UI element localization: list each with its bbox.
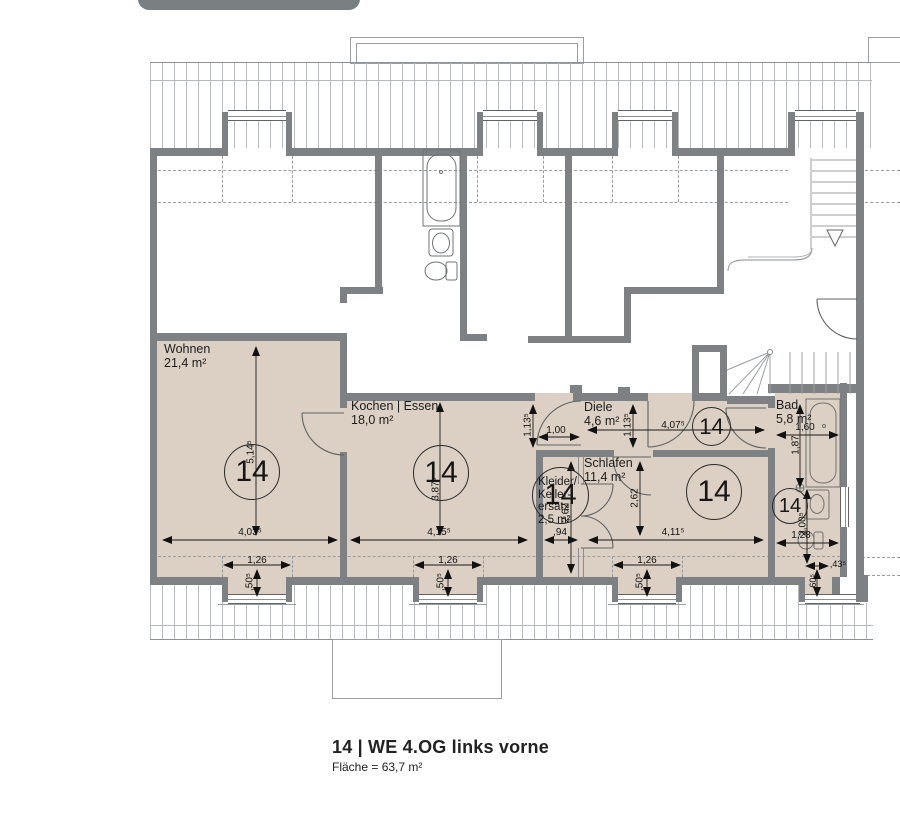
- dormer-wall: [676, 577, 682, 602]
- wall: [340, 287, 347, 303]
- wall: [653, 450, 775, 457]
- window-sill: [218, 604, 296, 605]
- wall: [840, 527, 847, 577]
- dim-label: 4,03⁵: [238, 527, 262, 538]
- dormer-wall: [788, 112, 795, 156]
- roof-height-dashed-line: [865, 170, 900, 171]
- wall: [768, 384, 863, 393]
- dim-label: 1,13⁵: [623, 413, 634, 437]
- dim-label: 1,60: [795, 422, 814, 433]
- wall: [375, 156, 382, 293]
- dim-label: 4,07⁵: [661, 420, 685, 431]
- dormer-dashed-line: [413, 556, 414, 577]
- wall: [717, 156, 724, 294]
- wall: [150, 148, 222, 156]
- roof-edge-line: [150, 62, 872, 63]
- room-area: 11,4 m²: [584, 470, 633, 484]
- wall: [292, 577, 413, 585]
- wall: [678, 148, 788, 156]
- dormer-window: [483, 110, 537, 121]
- room-name: Diele: [584, 400, 619, 414]
- stairs: [727, 158, 856, 394]
- window-sill: [409, 604, 487, 605]
- dormer-floor: [618, 577, 676, 595]
- wall: [856, 112, 864, 602]
- wall: [150, 577, 222, 585]
- partition-line: [578, 548, 579, 577]
- door-threshold: [340, 408, 347, 452]
- roof-skylight-outline: [356, 43, 578, 63]
- wall: [692, 393, 727, 401]
- dormer-dashed-line: [483, 556, 484, 577]
- dormer-window: [618, 594, 676, 604]
- dim-label: 4,15⁵: [427, 527, 451, 538]
- niche-window: [805, 594, 860, 604]
- roof-height-dashed-line: [865, 202, 900, 203]
- window-toolbar-fragment: [138, 0, 360, 10]
- roof-skylight-outline: [868, 37, 900, 63]
- roof-hatch-top: [150, 62, 872, 148]
- dormer-window: [419, 594, 477, 604]
- partition-line: [583, 548, 584, 577]
- room-area: 4,6 m²: [584, 414, 619, 428]
- dim-label: 1,13⁵: [523, 413, 534, 437]
- dim-label: ,94: [553, 527, 567, 538]
- dormer-wall: [537, 112, 543, 156]
- room-name: Bad: [776, 398, 811, 412]
- wall: [340, 401, 347, 408]
- room-area: 18,0 m²: [351, 413, 438, 427]
- wall: [624, 287, 724, 294]
- dormer-wall: [477, 577, 483, 602]
- dormer-dashed-line: [612, 156, 613, 202]
- dim-label: 2,62: [561, 503, 572, 522]
- dormer-dashed-line: [292, 556, 293, 577]
- dim-label: 1,26: [438, 555, 457, 566]
- unit-number: 14: [699, 414, 723, 440]
- dim-label: ,50⁵: [436, 573, 447, 591]
- wall: [528, 336, 631, 343]
- room-name: Kochen | Essen: [351, 399, 438, 413]
- room-area: 21,4 m²: [164, 356, 210, 370]
- dormer-floor: [228, 577, 286, 595]
- dormer-dashed-line: [678, 156, 679, 202]
- neighbor-washbasin: [429, 229, 453, 256]
- dim-label: 1,87: [791, 435, 802, 454]
- roof-ridge-line: [150, 80, 872, 81]
- dim-label: 1,00: [546, 425, 565, 436]
- stair-direction-arrow: [827, 230, 843, 246]
- dim-label: 1,28: [791, 530, 810, 541]
- unit-number-badge: 14: [692, 407, 731, 446]
- dormer-dashed-line: [682, 556, 683, 577]
- dim-label: ,60⁵: [808, 574, 818, 590]
- dim-label: 1,26: [637, 555, 656, 566]
- wall: [483, 577, 612, 585]
- wall: [340, 452, 347, 577]
- room-label-wohnen: Wohnen 21,4 m²: [164, 342, 210, 370]
- door-neighbor: [817, 299, 857, 339]
- room-name: Wohnen: [164, 342, 210, 356]
- roof-height-dashed-line: [158, 170, 788, 171]
- stairwell-window: [795, 110, 856, 121]
- wall: [768, 403, 775, 408]
- wall-pier: [618, 387, 630, 393]
- room-name: Schlafen: [584, 456, 633, 470]
- wall: [543, 148, 612, 156]
- wall: [460, 156, 467, 341]
- room-label-schlafen: Schlafen 11,4 m²: [584, 456, 633, 484]
- window-sill: [798, 604, 864, 605]
- dormer-wall: [286, 112, 292, 156]
- window-sill: [608, 604, 686, 605]
- dim-label: 3,87⁵: [431, 477, 442, 501]
- wall: [460, 334, 487, 341]
- dim-label: 2,62: [630, 488, 641, 507]
- dim-label: 4,11⁵: [662, 527, 685, 538]
- roof-height-dashed-line: [158, 202, 788, 203]
- wall: [682, 577, 805, 585]
- wall: [840, 383, 847, 487]
- dormer-floor: [419, 577, 477, 595]
- dim-label: ,43⁵: [830, 559, 846, 569]
- door-threshold: [535, 393, 573, 401]
- wall: [624, 294, 631, 343]
- wall-pier: [856, 575, 868, 602]
- dormer-window: [618, 110, 672, 121]
- unit-number-badge: 14: [686, 464, 742, 520]
- dim-label: 1,26: [247, 555, 266, 566]
- roof-height-dashed-line: [862, 557, 900, 558]
- dormer-wall: [286, 577, 292, 602]
- dormer-dashed-line: [292, 156, 293, 202]
- wall: [340, 333, 347, 401]
- wall-pier: [570, 385, 582, 393]
- roof-edge-line: [150, 639, 873, 640]
- bad-window: [840, 487, 849, 527]
- lower-dormer-outline: [332, 639, 502, 699]
- roof-hatch-bottom: [806, 603, 873, 639]
- dim-label: 5,14⁵: [246, 440, 257, 464]
- room-fill-diele: [536, 401, 768, 450]
- unit-number: 14: [697, 475, 730, 509]
- wall: [150, 148, 157, 585]
- dormer-dashed-line: [543, 156, 544, 202]
- dormer-window: [228, 594, 286, 604]
- door-threshold: [768, 408, 775, 448]
- floorplan-canvas: Wohnen 21,4 m² Kochen | Essen 18,0 m² Di…: [0, 0, 900, 817]
- dormer-dashed-line: [477, 156, 478, 202]
- room-label-diele: Diele 4,6 m²: [584, 400, 619, 428]
- wall: [292, 148, 477, 156]
- dormer-dashed-line: [222, 556, 223, 577]
- room-label-kochen: Kochen | Essen 18,0 m²: [351, 399, 438, 427]
- roof-ridge-line: [150, 625, 873, 626]
- plan-area-total: Fläche = 63,7 m²: [332, 760, 422, 774]
- dormer-dashed-line: [222, 156, 223, 202]
- wall: [565, 156, 572, 341]
- dormer-wall: [672, 112, 678, 156]
- dim-label: ,50⁵: [635, 573, 646, 591]
- plan-title: 14 | WE 4.OG links vorne: [332, 737, 549, 758]
- wall: [150, 333, 347, 341]
- neighbor-toilet: [446, 262, 457, 280]
- neighbor-bathtub: [423, 150, 460, 226]
- dormer-dashed-line: [612, 556, 613, 577]
- dormer-window: [228, 110, 286, 121]
- door-threshold: [648, 393, 692, 401]
- dim-label: ,50⁵: [245, 573, 256, 591]
